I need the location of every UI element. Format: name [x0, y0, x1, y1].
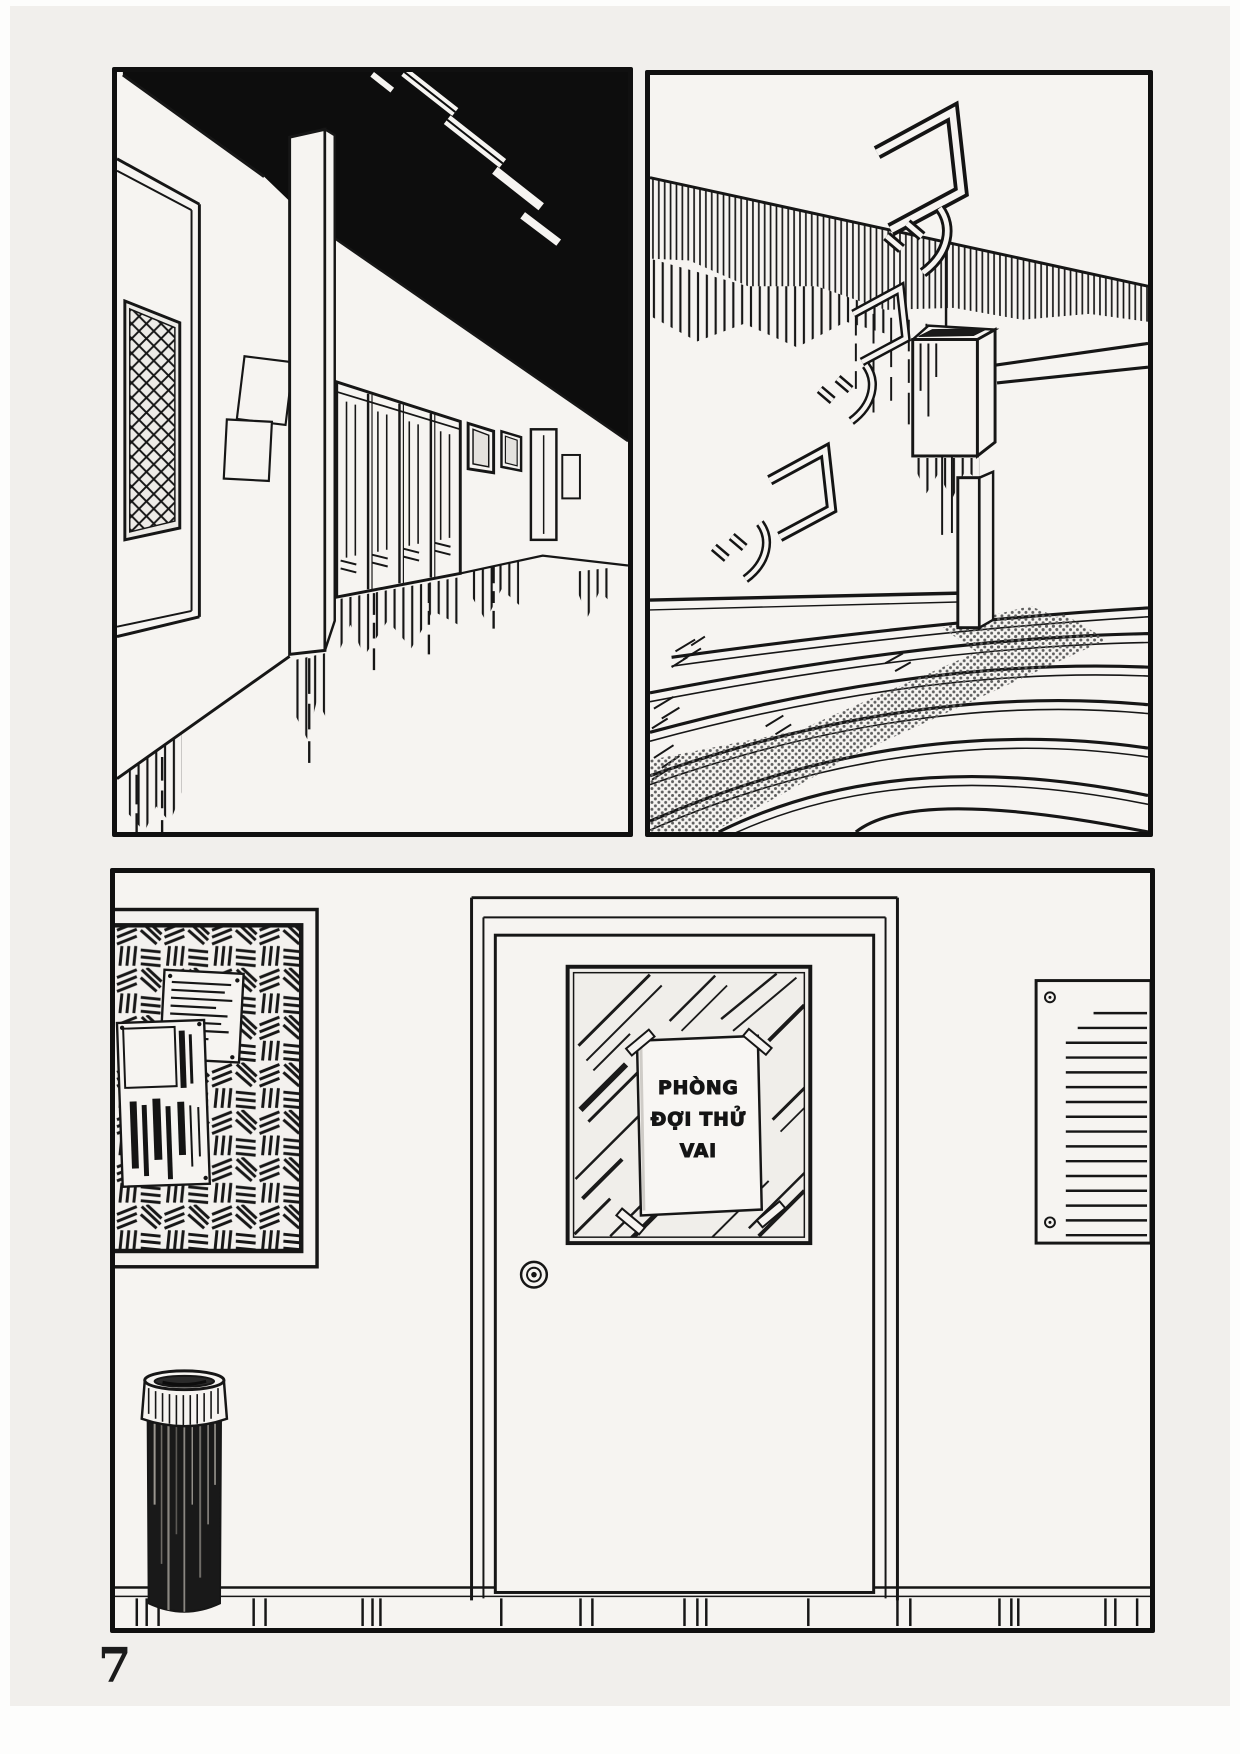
locker-bank	[337, 382, 461, 597]
door-window: PHÒNG ĐỢI THỬ VAI	[568, 967, 811, 1243]
panel-hallway	[112, 67, 633, 837]
wall-vent	[1036, 981, 1150, 1244]
pinned-note-poster	[117, 1020, 210, 1187]
sign-line-3: VAI	[680, 1141, 717, 1162]
audition-door: PHÒNG ĐỢI THỬ VAI	[472, 898, 898, 1601]
sign-line-1: PHÒNG	[658, 1075, 739, 1099]
page-number: 7	[98, 1642, 131, 1690]
newel-post	[958, 472, 993, 628]
manga-page: PHÒNG ĐỢI THỬ VAI	[0, 0, 1240, 1754]
sign-line-2: ĐỢI THỬ	[651, 1106, 747, 1131]
cylindrical-bin	[142, 1371, 227, 1613]
pillar	[290, 129, 335, 654]
bulletin-board	[115, 910, 317, 1267]
door-knob	[521, 1262, 547, 1288]
panel-waiting-room: PHÒNG ĐỢI THỬ VAI	[110, 868, 1155, 1633]
panel-stairway	[645, 70, 1153, 837]
